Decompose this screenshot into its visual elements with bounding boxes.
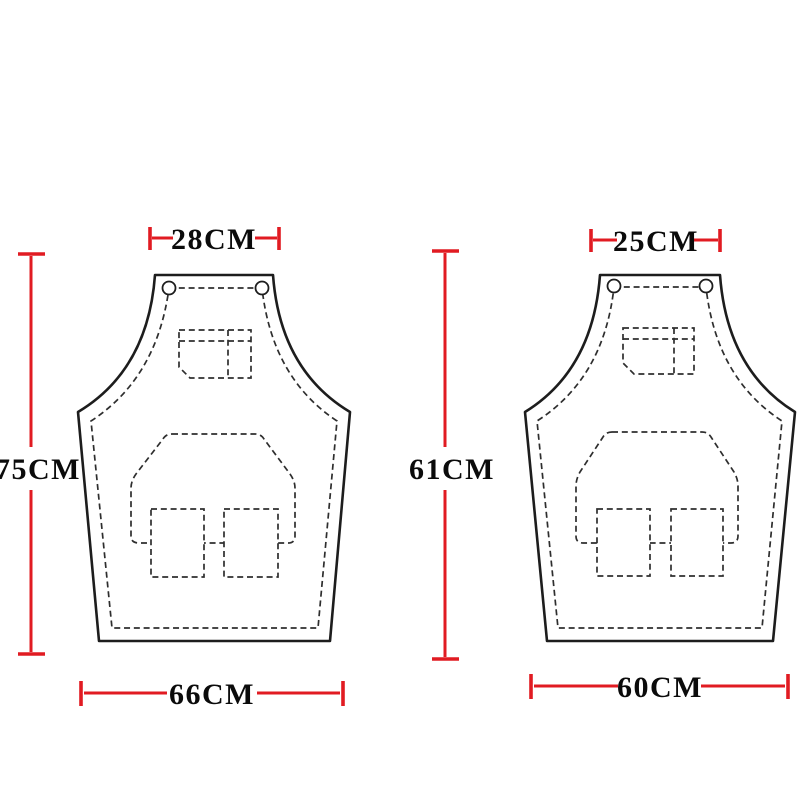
left-bottom-width-label: 66CM (169, 678, 255, 711)
left-top-width-label: 28CM (171, 223, 257, 256)
left-apron-left-grommet-icon (163, 282, 176, 295)
right-bottom-width-label: 60CM (617, 671, 703, 704)
left-apron-right-grommet-icon (256, 282, 269, 295)
right-top-width-label: 25CM (613, 225, 699, 258)
diagram-canvas: 28CM 75CM 66CM 25CM 61CM 60CM (0, 0, 800, 800)
front-pocket-right-compartment (224, 509, 278, 577)
right-height-label: 61CM (409, 453, 495, 486)
front-pocket-right-compartment (671, 509, 723, 576)
left-height-label: 75CM (0, 453, 81, 486)
front-pocket-left-compartment (151, 509, 204, 577)
right-apron-right-grommet-icon (700, 280, 713, 293)
front-pocket-left-compartment (597, 509, 650, 576)
apron-size-diagram: 28CM 75CM 66CM 25CM 61CM 60CM (0, 0, 800, 800)
right-apron-left-grommet-icon (608, 280, 621, 293)
